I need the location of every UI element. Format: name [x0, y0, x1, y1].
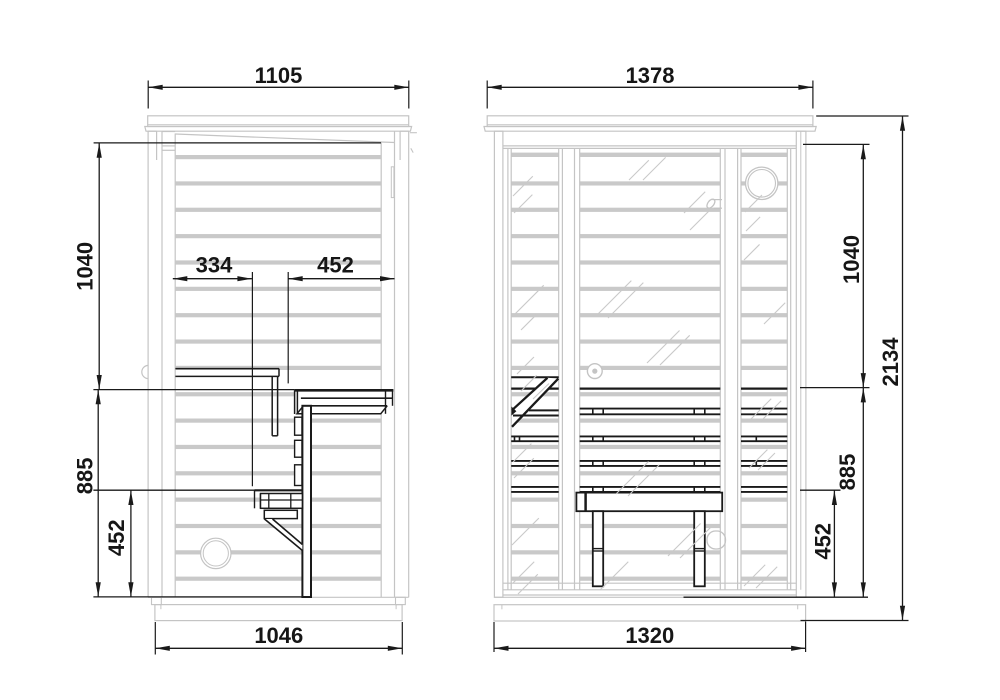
svg-text:452: 452 [104, 519, 129, 556]
svg-text:2134: 2134 [878, 337, 903, 387]
svg-text:452: 452 [317, 253, 354, 278]
svg-text:1040: 1040 [73, 242, 98, 291]
svg-text:452: 452 [811, 523, 836, 560]
svg-text:1040: 1040 [839, 235, 864, 284]
svg-text:1320: 1320 [625, 623, 674, 648]
svg-text:1105: 1105 [255, 63, 303, 88]
svg-text:1046: 1046 [254, 623, 303, 648]
svg-text:334: 334 [196, 253, 233, 278]
svg-text:1378: 1378 [626, 63, 675, 88]
svg-text:885: 885 [73, 458, 98, 495]
svg-text:885: 885 [835, 454, 860, 491]
